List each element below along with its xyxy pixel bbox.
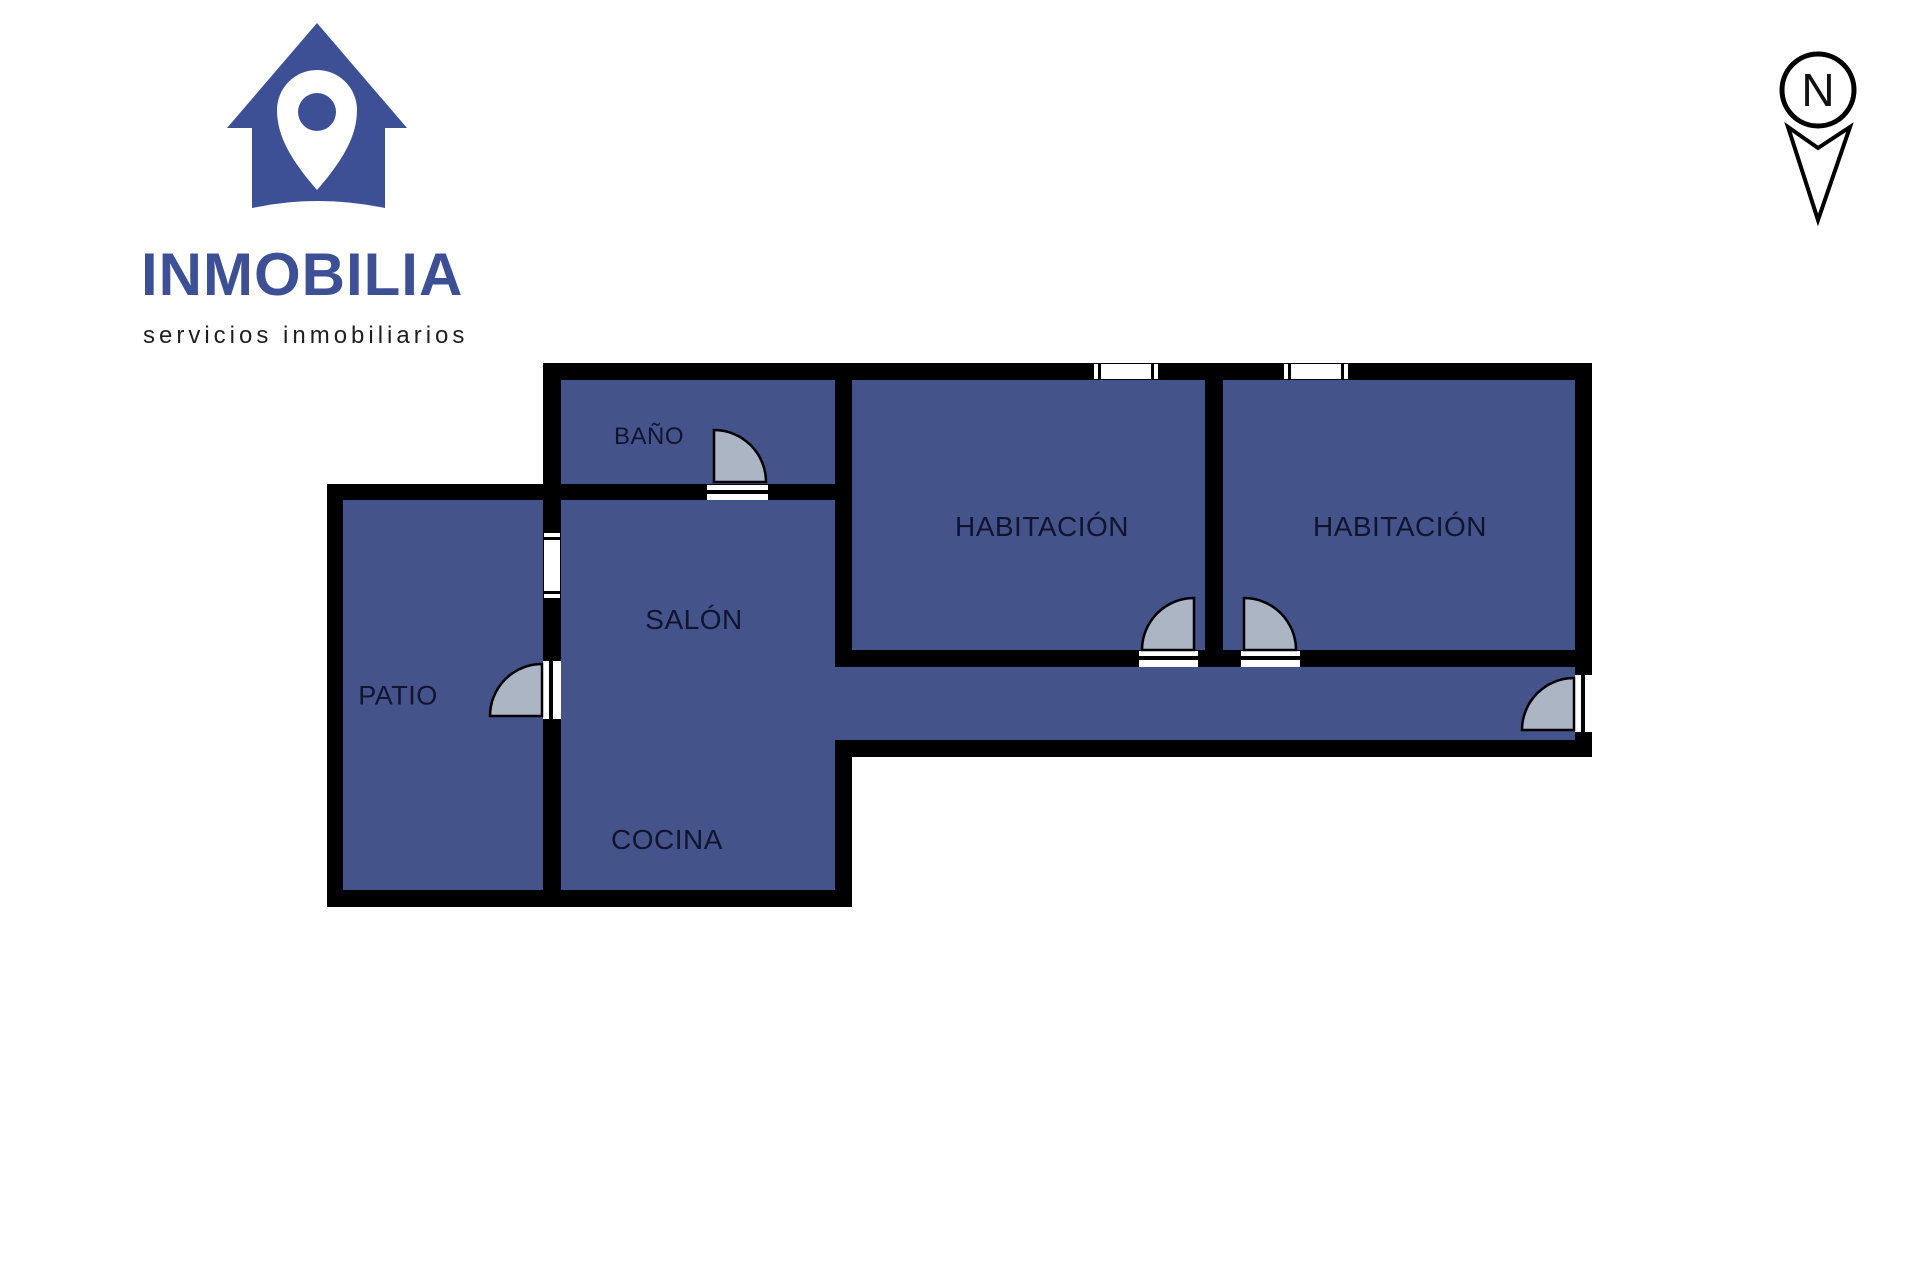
- floorplan-page: INMOBILIA servicios inmobiliarios N: [0, 0, 1920, 1272]
- wall-patio-bano-band: [327, 484, 852, 500]
- door-swing-habitacion2-icon: [1242, 596, 1298, 652]
- wall-center-divider: [543, 363, 561, 890]
- window-tick: [544, 591, 560, 594]
- window-habitacion1-icon: [1094, 364, 1158, 379]
- room-label-salon: SALÓN: [645, 604, 742, 636]
- window-tick: [544, 537, 560, 540]
- window-tick: [1341, 364, 1344, 379]
- wall-top-exterior: [543, 363, 1592, 380]
- door-leaf-habitacion2: [1241, 651, 1300, 667]
- window-habitacion2-icon: [1284, 364, 1348, 379]
- door-leaf-bano: [707, 485, 768, 500]
- door-leaf-habitacion1: [1139, 651, 1198, 667]
- logo-pin-dot: [298, 93, 336, 131]
- door-swing-habitacion1-icon: [1140, 596, 1196, 652]
- room-label-habitacion-1: HABITACIÓN: [955, 511, 1129, 543]
- brand-tagline: servicios inmobiliarios: [143, 322, 468, 349]
- door-swing-bano-icon: [712, 428, 768, 484]
- door-leaf-entrance: [1575, 675, 1592, 732]
- wall-habitacion-divider: [1205, 380, 1223, 667]
- compass-north-icon: N: [1768, 42, 1872, 237]
- compass-north-label: N: [1801, 64, 1834, 116]
- door-swing-patio-icon: [488, 662, 544, 718]
- window-tick: [1098, 364, 1101, 379]
- window-patio-salon-icon: [544, 533, 560, 598]
- compass-arrow: [1788, 127, 1850, 220]
- brand-logo: INMOBILIA servicios inmobiliarios: [95, 8, 515, 353]
- window-tick: [1151, 364, 1154, 379]
- room-label-habitacion-2: HABITACIÓN: [1313, 511, 1487, 543]
- door-leaf-patio: [543, 661, 561, 719]
- room-label-cocina: COCINA: [611, 824, 723, 856]
- room-label-bano: BAÑO: [614, 423, 684, 451]
- window-tick: [1288, 364, 1291, 379]
- wall-salon-habitacion1: [835, 380, 852, 650]
- wall-bottom-exterior: [327, 890, 852, 907]
- room-label-patio: PATIO: [358, 681, 438, 712]
- wall-left-exterior: [327, 484, 343, 907]
- door-swing-entrance-icon: [1520, 676, 1576, 732]
- wall-cocina-right: [835, 740, 852, 907]
- brand-name: INMOBILIA: [141, 241, 463, 308]
- wall-corridor-bottom: [835, 740, 1592, 757]
